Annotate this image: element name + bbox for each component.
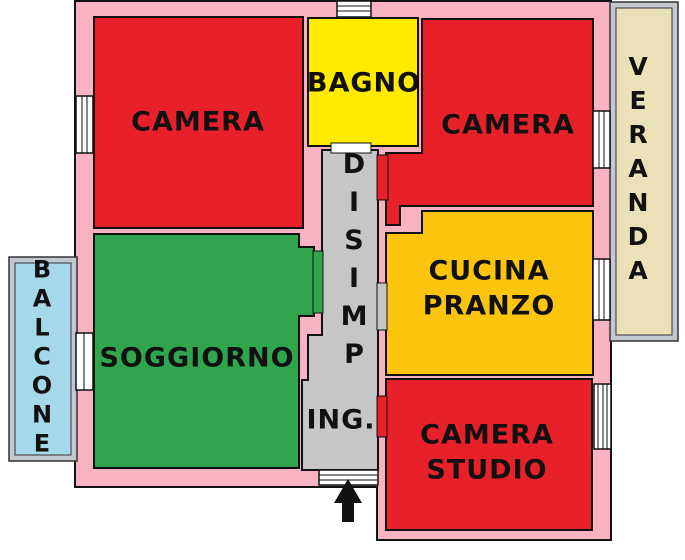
door-soggiorno: [313, 251, 323, 313]
window-camera-studio: [594, 384, 611, 449]
window-balcone-door: [76, 333, 93, 390]
room-bagno: [308, 18, 418, 146]
window-cucina: [593, 259, 610, 320]
room-camera-studio: [386, 379, 592, 530]
door-bagno: [331, 143, 371, 153]
door-camera-top-right: [377, 155, 388, 200]
room-balcone: [15, 263, 71, 455]
room-veranda: [616, 8, 672, 335]
room-camera-top-left: [94, 17, 303, 228]
door-camera-studio: [377, 396, 387, 437]
floor-plan-drawing: [0, 0, 685, 560]
floor-plan: CAMERA BAGNO CAMERA CUCINA PRANZO SOGGIO…: [0, 0, 685, 560]
door-cucina: [377, 283, 387, 330]
room-soggiorno: [94, 234, 314, 468]
window-camera-top-left: [76, 96, 93, 153]
window-bagno-top: [337, 1, 371, 17]
window-camera-top-right: [593, 111, 610, 168]
room-cucina-pranzo: [386, 211, 593, 375]
